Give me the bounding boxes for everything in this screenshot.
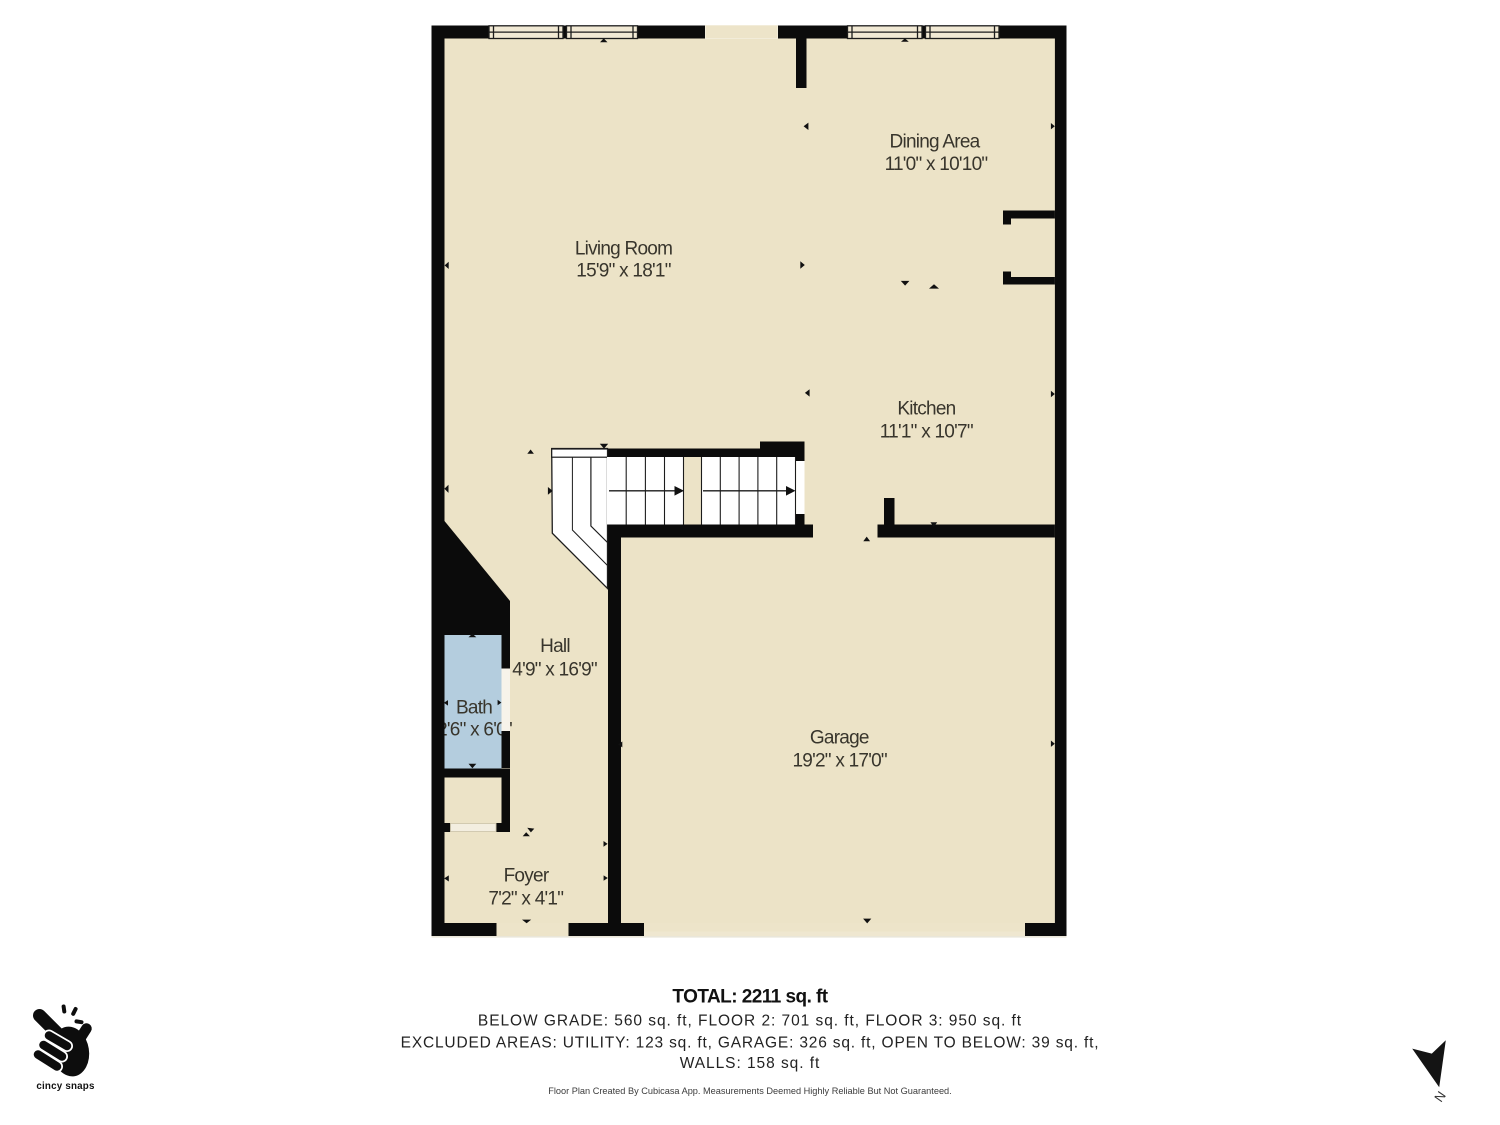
- svg-text:7'2" x 4'1": 7'2" x 4'1": [488, 889, 563, 910]
- svg-text:WALLS: 158 sq. ft: WALLS: 158 sq. ft: [680, 1055, 821, 1072]
- svg-text:4'9" x 16'9": 4'9" x 16'9": [512, 660, 597, 681]
- svg-text:cincy snaps: cincy snaps: [36, 1081, 95, 1092]
- svg-text:TOTAL: 2211 sq. ft: TOTAL: 2211 sq. ft: [672, 987, 828, 1008]
- svg-text:19'2" x 17'0": 19'2" x 17'0": [792, 751, 886, 772]
- svg-text:Foyer: Foyer: [504, 866, 550, 887]
- svg-text:N: N: [1431, 1088, 1449, 1104]
- svg-text:Bath: Bath: [456, 697, 492, 718]
- svg-text:BELOW GRADE: 560 sq. ft, FLOOR: BELOW GRADE: 560 sq. ft, FLOOR 2: 701 sq…: [478, 1012, 1022, 1029]
- svg-text:15'9" x 18'1": 15'9" x 18'1": [576, 261, 670, 282]
- svg-text:11'1" x 10'7": 11'1" x 10'7": [880, 422, 973, 443]
- svg-text:Hall: Hall: [540, 636, 570, 657]
- svg-text:Living Room: Living Room: [575, 239, 672, 260]
- svg-text:2'6" x 6'0": 2'6" x 6'0": [437, 719, 512, 740]
- svg-text:11'0" x 10'10": 11'0" x 10'10": [885, 154, 988, 175]
- svg-text:Kitchen: Kitchen: [897, 398, 955, 419]
- svg-text:Floor Plan Created By Cubicasa: Floor Plan Created By Cubicasa App. Meas…: [548, 1086, 951, 1096]
- svg-text:Dining Area: Dining Area: [890, 132, 981, 153]
- svg-text:EXCLUDED AREAS: UTILITY: 123 s: EXCLUDED AREAS: UTILITY: 123 sq. ft, GAR…: [401, 1035, 1100, 1052]
- svg-text:Garage: Garage: [810, 728, 869, 749]
